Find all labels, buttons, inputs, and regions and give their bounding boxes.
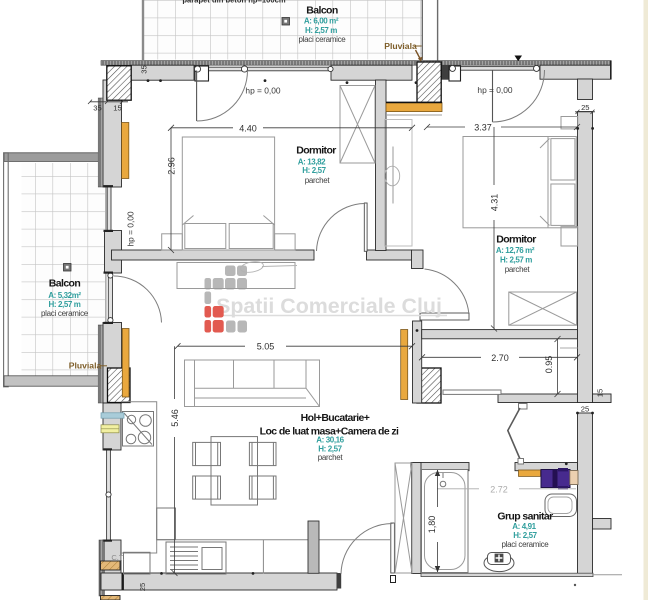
svg-text:placi ceramice: placi ceramice xyxy=(41,309,89,318)
svg-text:35: 35 xyxy=(93,104,101,113)
svg-text:0.95: 0.95 xyxy=(544,356,554,374)
svg-text:placi ceramice: placi ceramice xyxy=(502,540,550,549)
svg-text:2.72: 2.72 xyxy=(490,484,508,494)
svg-text:15: 15 xyxy=(596,389,605,397)
svg-text:H: 2,57: H: 2,57 xyxy=(302,166,326,175)
svg-text:Balcon: Balcon xyxy=(306,5,338,17)
svg-text:H: 2,57 m: H: 2,57 m xyxy=(49,300,81,309)
svg-text:H: 2,57 m: H: 2,57 m xyxy=(305,26,337,35)
svg-text:A: 30,16: A: 30,16 xyxy=(316,436,344,445)
svg-text:parchet: parchet xyxy=(305,176,331,185)
svg-text:Grup sanitar: Grup sanitar xyxy=(497,511,553,523)
svg-text:4.31: 4.31 xyxy=(490,194,500,212)
svg-text:Balcon: Balcon xyxy=(49,278,81,290)
svg-text:parapet din beton hp=100cm: parapet din beton hp=100cm xyxy=(182,0,285,5)
svg-text:25: 25 xyxy=(581,405,589,414)
svg-text:A: 4,91: A: 4,91 xyxy=(512,522,536,531)
svg-text:4.40: 4.40 xyxy=(239,123,257,133)
svg-text:placi ceramice: placi ceramice xyxy=(299,35,347,44)
svg-text:2.70: 2.70 xyxy=(491,353,509,363)
svg-text:Pluviala: Pluviala xyxy=(384,41,417,51)
svg-text:25: 25 xyxy=(581,103,589,112)
svg-text:A: 12,76 m²: A: 12,76 m² xyxy=(496,246,535,255)
svg-text:H: 2,57 m: H: 2,57 m xyxy=(500,256,532,265)
svg-text:parchet: parchet xyxy=(318,453,344,462)
svg-text:25: 25 xyxy=(138,583,147,591)
svg-text:15: 15 xyxy=(113,104,121,113)
svg-text:Dormitor: Dormitor xyxy=(496,234,536,246)
svg-text:2.96: 2.96 xyxy=(167,157,177,175)
svg-text:Pluviala: Pluviala xyxy=(69,361,102,371)
svg-text:hp = 0,00: hp = 0,00 xyxy=(245,86,281,96)
svg-text:35: 35 xyxy=(139,65,148,73)
svg-text:H: 2,57: H: 2,57 xyxy=(513,531,537,540)
svg-text:5.05: 5.05 xyxy=(257,342,275,352)
svg-text:hp = 0,00: hp = 0,00 xyxy=(477,85,513,95)
svg-text:hp = 0,00: hp = 0,00 xyxy=(126,211,136,247)
svg-text:Spatii Comerciale Cluj: Spatii Comerciale Cluj xyxy=(216,294,442,318)
svg-text:A: 6,00 m²: A: 6,00 m² xyxy=(304,17,339,26)
svg-text:1,80: 1,80 xyxy=(427,516,437,534)
svg-text:Dormitor: Dormitor xyxy=(296,145,336,157)
svg-text:Hol+Bucatarie+: Hol+Bucatarie+ xyxy=(301,412,370,424)
svg-text:parchet: parchet xyxy=(505,265,531,274)
svg-text:3.37: 3.37 xyxy=(474,123,492,133)
svg-text:5.46: 5.46 xyxy=(170,409,180,427)
svg-text:A: 5,32m²: A: 5,32m² xyxy=(48,291,81,300)
svg-text:C.T.: C.T. xyxy=(111,553,124,562)
